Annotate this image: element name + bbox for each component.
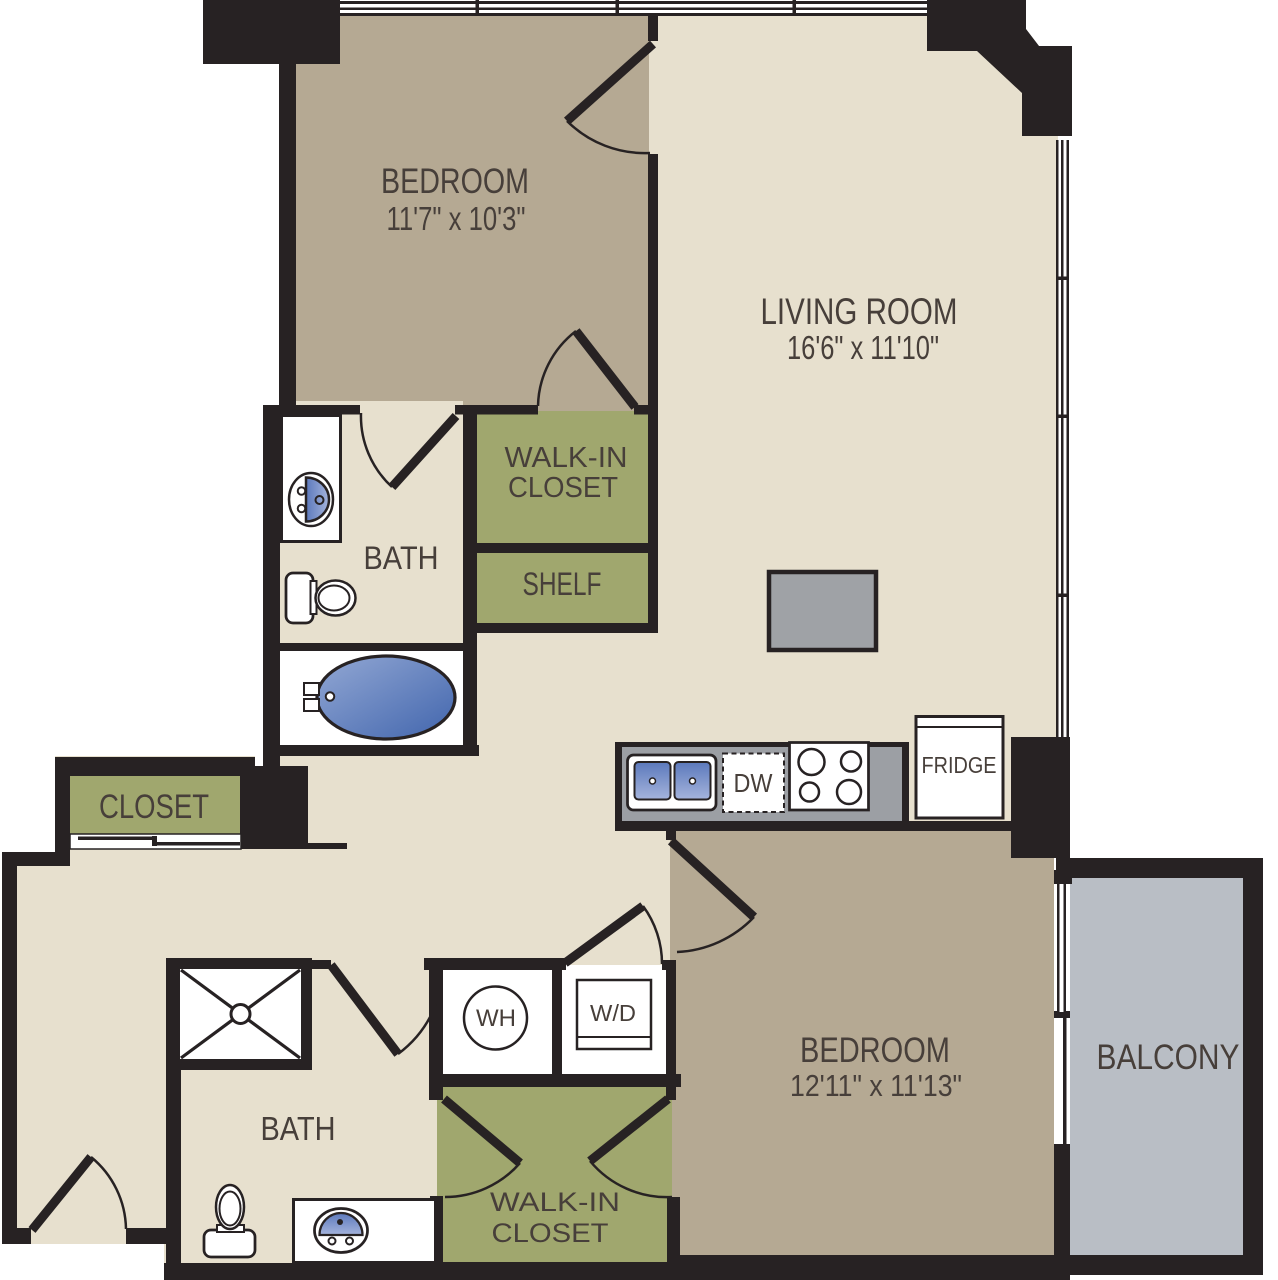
svg-text:DW: DW xyxy=(734,768,773,798)
svg-text:SHELF: SHELF xyxy=(523,566,602,602)
svg-text:LIVING ROOM: LIVING ROOM xyxy=(761,291,958,332)
svg-text:11'7" x 10'3": 11'7" x 10'3" xyxy=(387,200,526,237)
svg-text:BATH: BATH xyxy=(261,1110,336,1147)
svg-text:BATH: BATH xyxy=(364,540,439,576)
svg-text:BEDROOM: BEDROOM xyxy=(800,1031,950,1070)
svg-text:W/D: W/D xyxy=(590,1000,636,1026)
svg-text:CLOSET: CLOSET xyxy=(492,1218,609,1248)
svg-text:CLOSET: CLOSET xyxy=(508,472,618,504)
svg-text:WH: WH xyxy=(476,1005,516,1032)
svg-text:CLOSET: CLOSET xyxy=(99,788,209,826)
svg-text:BEDROOM: BEDROOM xyxy=(381,162,529,201)
svg-text:12'11" x 11'13": 12'11" x 11'13" xyxy=(790,1068,962,1103)
svg-text:WALK-IN: WALK-IN xyxy=(490,1187,620,1217)
svg-text:16'6" x 11'10": 16'6" x 11'10" xyxy=(787,329,939,366)
svg-text:FRIDGE: FRIDGE xyxy=(922,752,997,778)
svg-text:WALK-IN: WALK-IN xyxy=(505,442,628,474)
svg-text:BALCONY: BALCONY xyxy=(1097,1038,1240,1077)
